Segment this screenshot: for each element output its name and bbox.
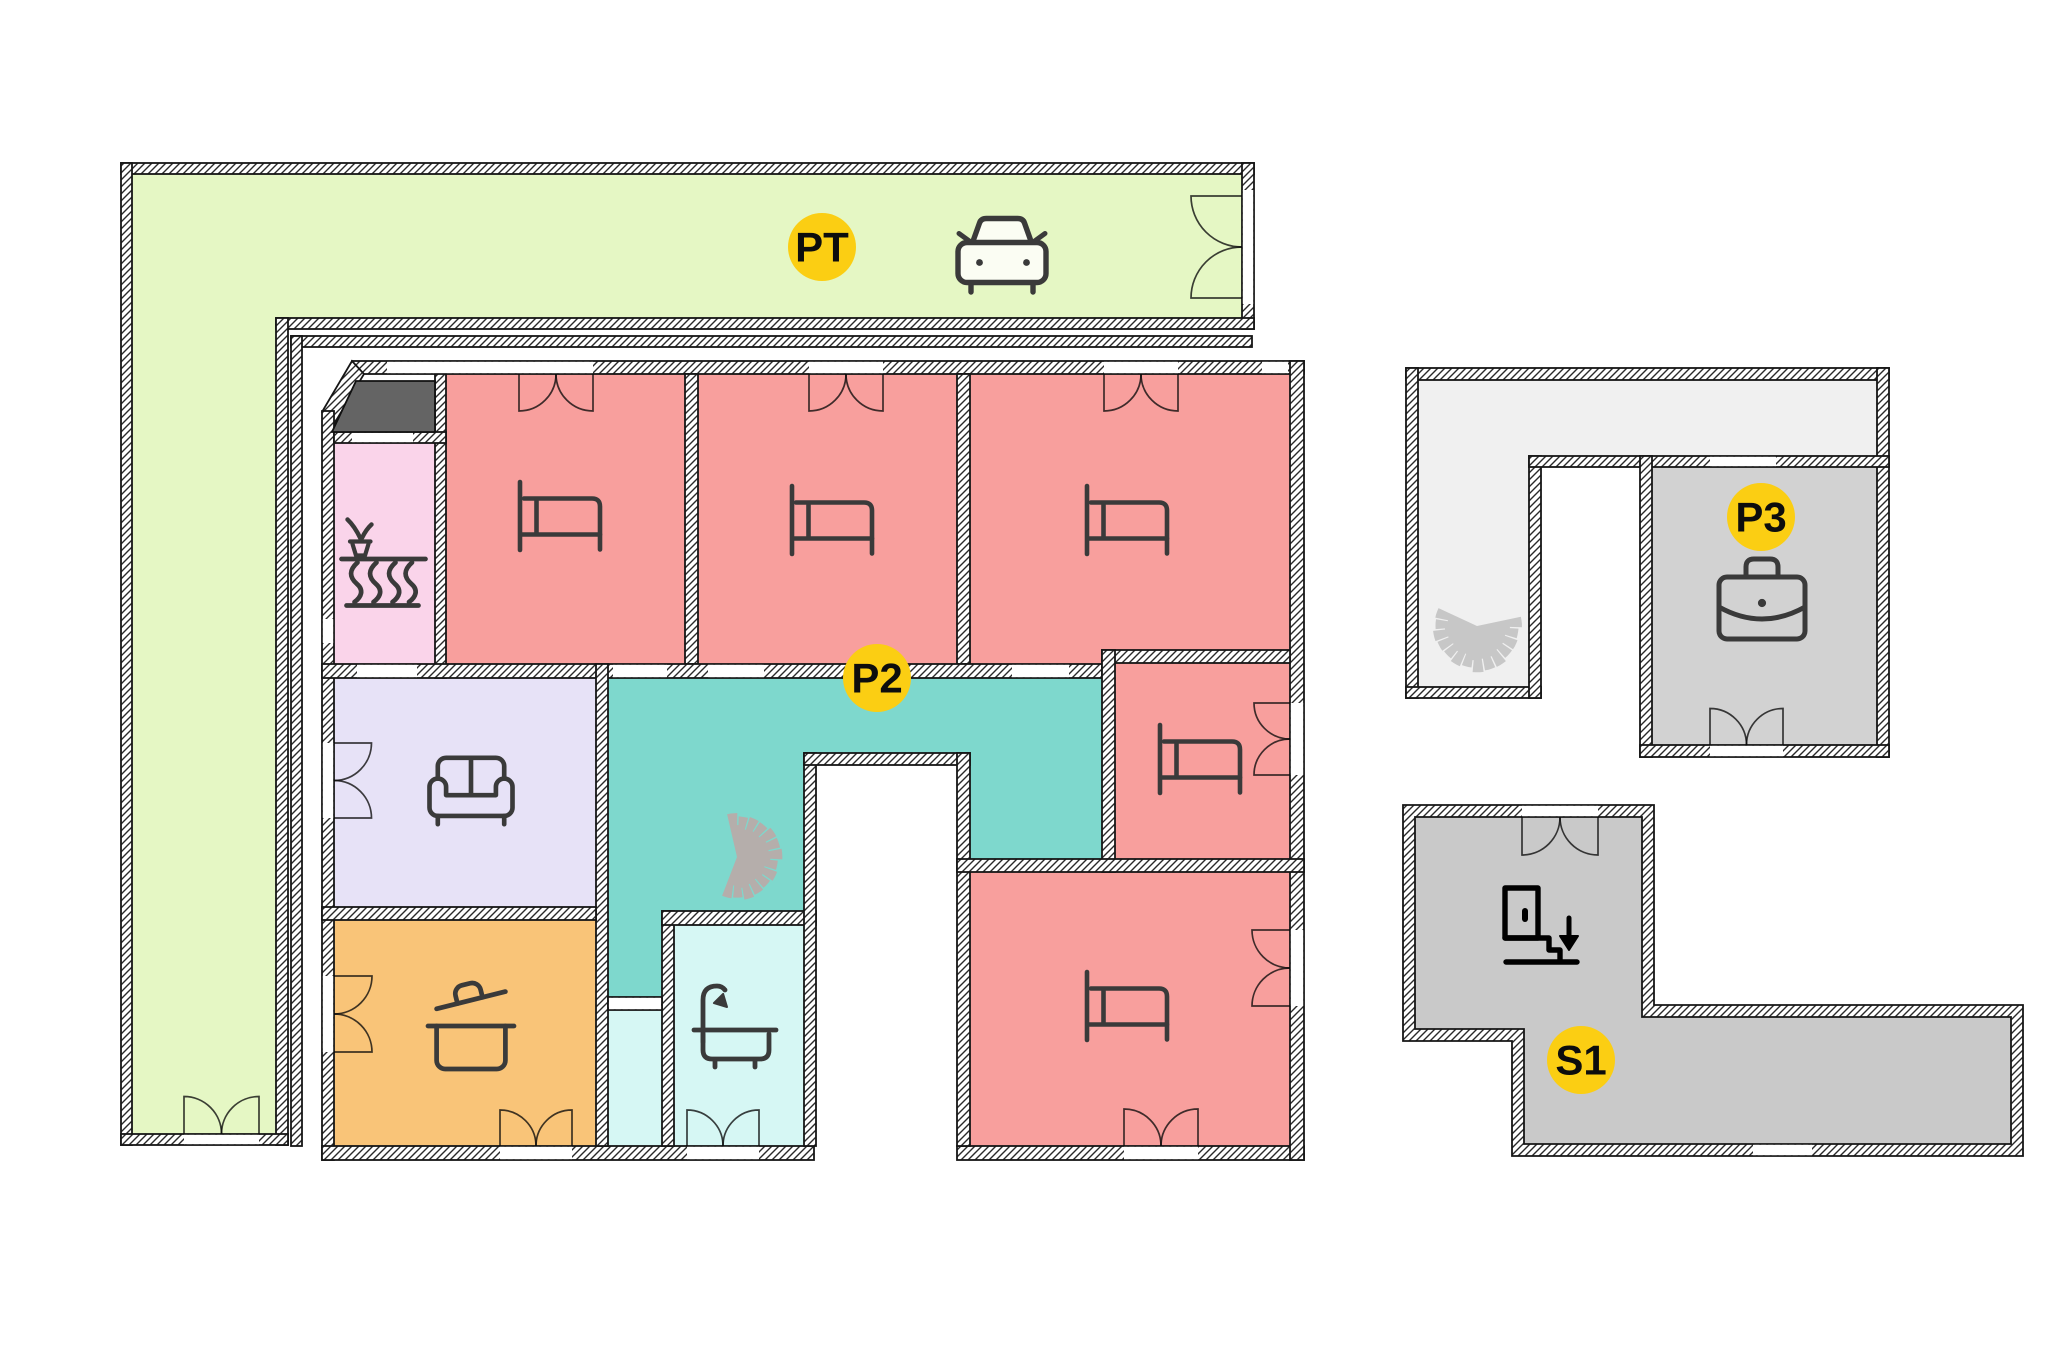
svg-text:PT: PT [795,224,849,271]
svg-text:P3: P3 [1735,494,1786,541]
svg-text:P2: P2 [851,655,902,702]
svg-text:S1: S1 [1555,1037,1606,1084]
